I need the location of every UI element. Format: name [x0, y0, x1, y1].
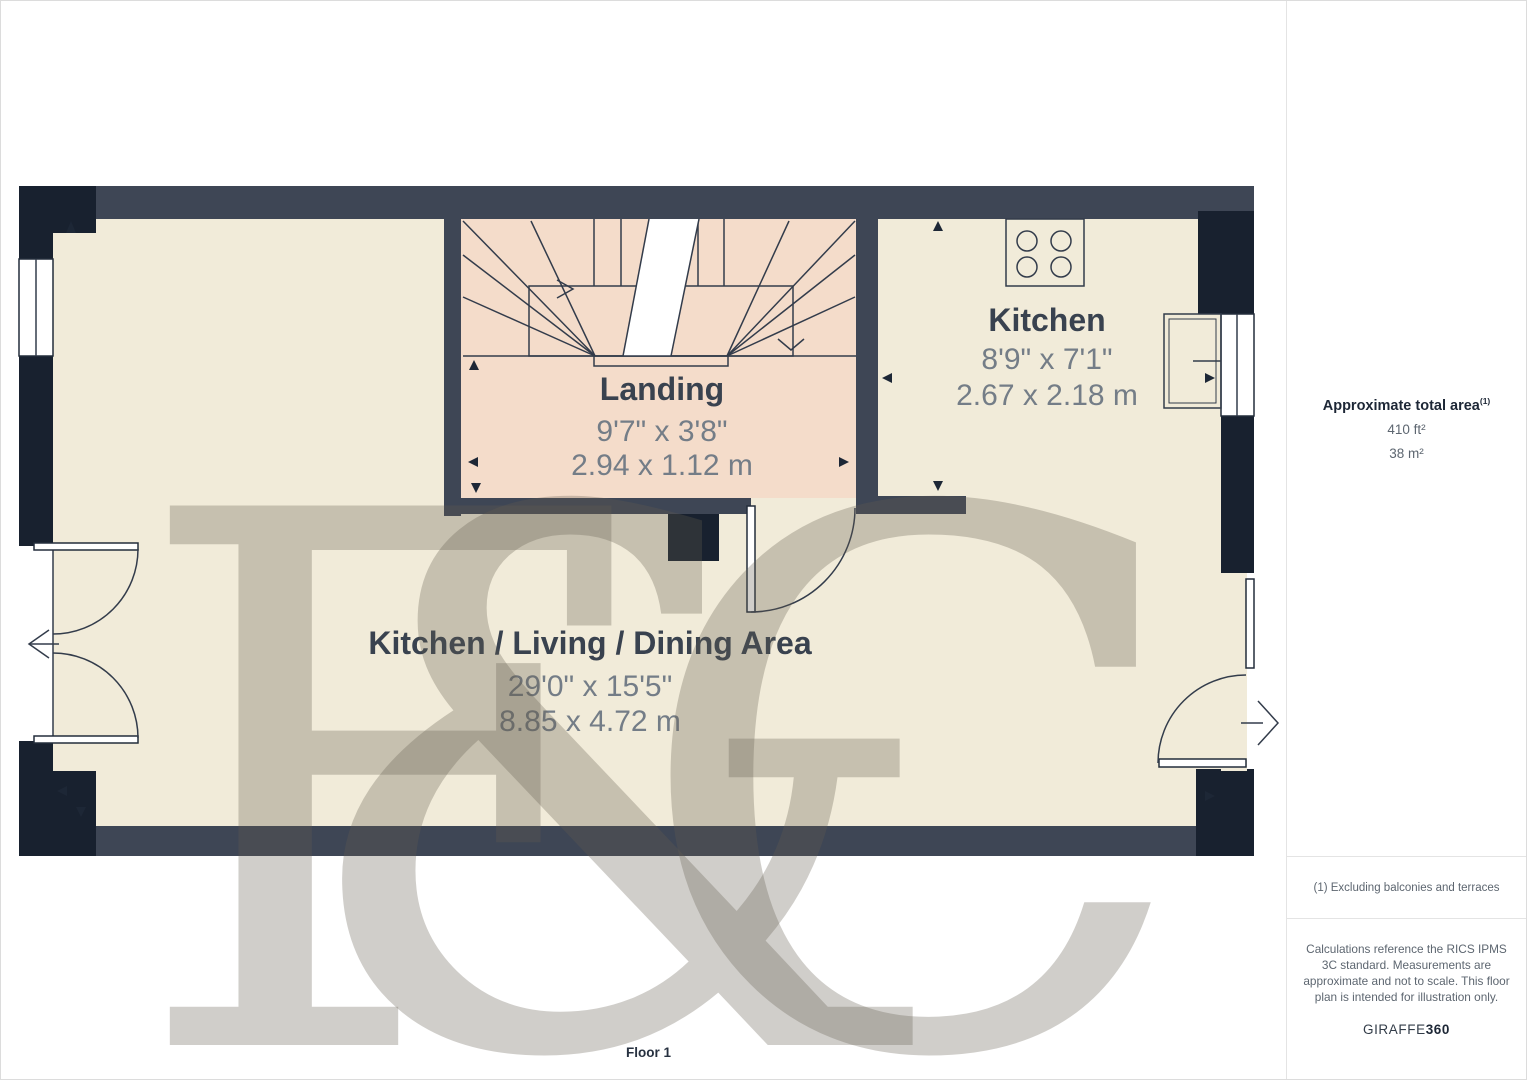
door-leaf: [34, 543, 138, 550]
total-area-title: Approximate total area(1): [1323, 396, 1491, 414]
window: [1246, 579, 1254, 668]
room-name-living-dining: Kitchen / Living / Dining Area: [368, 625, 812, 661]
total-area-title-text: Approximate total area: [1323, 397, 1480, 413]
disclaimer-text: Calculations reference the RICS IPMS 3C …: [1302, 941, 1511, 1005]
room-name-landing: Landing: [600, 371, 724, 407]
info-panel: Approximate total area(1) 410 ft² 38 m² …: [1286, 1, 1526, 1080]
floor-plan-svg: Landing 9'7" x 3'8" 2.94 x 1.12 m Kitche…: [1, 1, 1288, 1080]
footnote-marker: (1): [1480, 396, 1490, 406]
brand-name: GIRAFFE: [1363, 1022, 1426, 1037]
total-area-metric: 38 m²: [1389, 446, 1424, 461]
footnote-text: (1) Excluding balconies and terraces: [1313, 882, 1499, 894]
total-area-imperial: 410 ft²: [1387, 422, 1425, 437]
floorplan-page: Landing 9'7" x 3'8" 2.94 x 1.12 m Kitche…: [0, 0, 1527, 1080]
stove-icon: [1006, 219, 1084, 286]
room-dims-imperial: 29'0" x 15'5": [508, 670, 673, 703]
room-dims-metric: 2.67 x 2.18 m: [956, 379, 1138, 412]
total-area-section: Approximate total area(1) 410 ft² 38 m²: [1287, 1, 1526, 856]
floor-label: Floor 1: [576, 1045, 721, 1060]
room-dims-metric: 2.94 x 1.12 m: [571, 449, 753, 482]
footnote-section: (1) Excluding balconies and terraces: [1287, 856, 1526, 918]
door-leaf: [1159, 759, 1246, 767]
disclaimer-section: Calculations reference the RICS IPMS 3C …: [1287, 918, 1526, 1080]
room-dims-metric: 8.85 x 4.72 m: [499, 705, 681, 738]
door-leaf: [747, 506, 755, 612]
room-dims-imperial: 9'7" x 3'8": [596, 415, 727, 448]
room-name-kitchen: Kitchen: [988, 302, 1105, 338]
wall-recess: [1221, 573, 1247, 771]
door-leaf: [34, 736, 138, 743]
room-dims-imperial: 8'9" x 7'1": [981, 343, 1112, 376]
giraffe360-logo: GIRAFFE360: [1302, 1022, 1511, 1037]
brand-number: 360: [1426, 1022, 1450, 1037]
